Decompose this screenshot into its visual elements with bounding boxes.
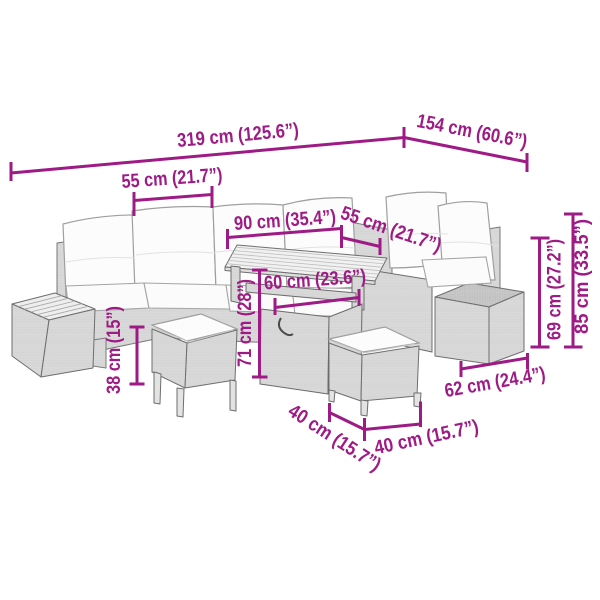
svg-text:71 cm (28”): 71 cm (28”)	[234, 279, 256, 367]
svg-text:38 cm (15”): 38 cm (15”)	[103, 306, 125, 394]
svg-text:85 cm (33.5”): 85 cm (33.5”)	[571, 219, 593, 334]
svg-text:40 cm (15.7”): 40 cm (15.7”)	[372, 416, 480, 460]
svg-text:319 cm (125.6”): 319 cm (125.6”)	[176, 119, 299, 152]
svg-text:55 cm (21.7”): 55 cm (21.7”)	[121, 164, 223, 193]
svg-text:62 cm (24.4”): 62 cm (24.4”)	[443, 363, 547, 402]
svg-text:40 cm (15.7”): 40 cm (15.7”)	[284, 400, 385, 476]
svg-text:154 cm (60.6”): 154 cm (60.6”)	[415, 110, 529, 153]
svg-text:69 cm (27.2”): 69 cm (27.2”)	[544, 239, 566, 340]
